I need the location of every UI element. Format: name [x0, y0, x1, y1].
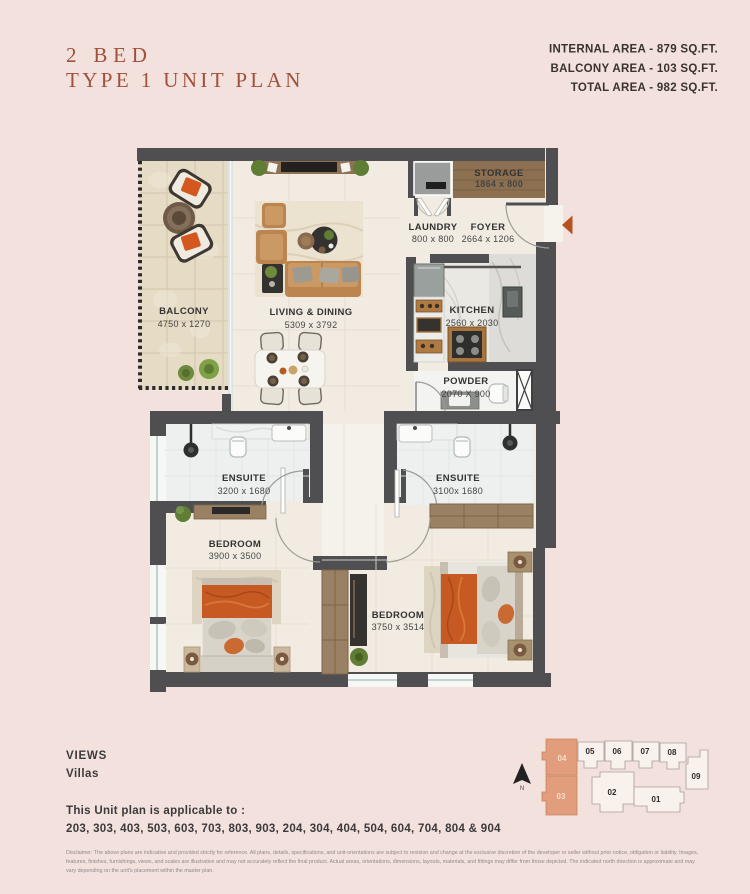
svg-text:Villas: Villas	[66, 768, 99, 780]
svg-text:BEDROOM: BEDROOM	[209, 539, 261, 550]
svg-text:ENSUITE: ENSUITE	[436, 473, 480, 484]
svg-text:3100x 1680: 3100x 1680	[433, 486, 483, 496]
svg-text:02: 02	[608, 788, 617, 797]
svg-text:LIVING & DINING: LIVING & DINING	[269, 307, 352, 318]
svg-text:2070 X 900: 2070 X 900	[441, 389, 490, 399]
svg-text:3750 x 3514: 3750 x 3514	[372, 622, 425, 632]
svg-text:06: 06	[613, 747, 622, 756]
svg-text:BEDROOM: BEDROOM	[372, 610, 424, 621]
svg-text:INTERNAL AREA - 879 SQ.FT.: INTERNAL AREA - 879 SQ.FT.	[549, 44, 718, 56]
svg-text:vary depending on the unit's p: vary depending on the unit's placement w…	[66, 868, 214, 874]
svg-text:N: N	[520, 786, 524, 792]
svg-text:TOTAL AREA - 982 SQ.FT.: TOTAL AREA - 982 SQ.FT.	[571, 82, 718, 94]
svg-text:05: 05	[586, 747, 595, 756]
svg-text:203, 303, 403, 503, 603, 703,: 203, 303, 403, 503, 603, 703, 803, 903, …	[66, 823, 501, 835]
svg-text:09: 09	[692, 772, 701, 781]
svg-text:2664 x 1206: 2664 x 1206	[462, 234, 515, 244]
svg-text:FOYER: FOYER	[471, 222, 506, 233]
svg-text:2560 x 2030: 2560 x 2030	[446, 318, 499, 328]
svg-text:VIEWS: VIEWS	[66, 750, 107, 762]
svg-text:3200 x 1680: 3200 x 1680	[218, 486, 271, 496]
svg-text:Disclaimer: The above plans ar: Disclaimer: The above plans are indicati…	[66, 850, 698, 856]
svg-text:08: 08	[668, 748, 677, 757]
svg-text:03: 03	[557, 792, 566, 801]
svg-text:STORAGE: STORAGE	[474, 168, 524, 179]
svg-text:800 x 800: 800 x 800	[412, 234, 454, 244]
svg-text:KITCHEN: KITCHEN	[449, 305, 494, 316]
svg-text:07: 07	[641, 747, 650, 756]
svg-text:BALCONY AREA - 103 SQ.FT.: BALCONY AREA - 103 SQ.FT.	[551, 63, 718, 75]
svg-text:5309 x 3792: 5309 x 3792	[285, 320, 338, 330]
svg-text:3900 x 3500: 3900 x 3500	[209, 551, 262, 561]
svg-text:ENSUITE: ENSUITE	[222, 473, 266, 484]
svg-text:POWDER: POWDER	[443, 376, 488, 387]
svg-text:BALCONY: BALCONY	[159, 306, 209, 317]
svg-text:4750 x 1270: 4750 x 1270	[158, 319, 211, 329]
svg-text:TYPE 1 UNIT PLAN: TYPE 1 UNIT PLAN	[66, 68, 304, 92]
svg-text:LAUNDRY: LAUNDRY	[409, 222, 458, 233]
svg-text:1864 x 800: 1864 x 800	[475, 179, 523, 189]
svg-text:This Unit plan is applicable t: This Unit plan is applicable to :	[66, 805, 245, 817]
svg-text:features, finishes, furnishing: features, finishes, furnishings, views, …	[66, 859, 695, 865]
svg-text:2 BED: 2 BED	[66, 43, 153, 67]
svg-text:01: 01	[652, 795, 661, 804]
svg-text:04: 04	[558, 754, 567, 763]
